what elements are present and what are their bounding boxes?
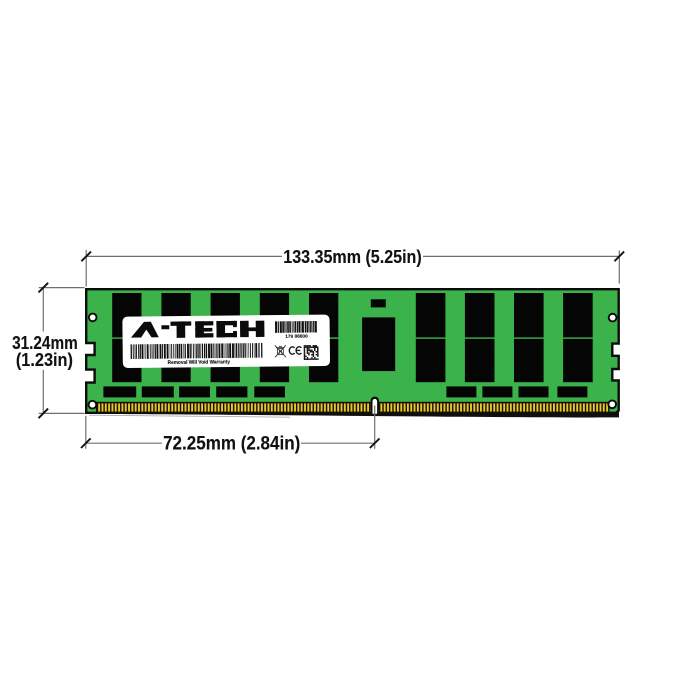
svg-text:(1.23in): (1.23in) bbox=[16, 349, 73, 370]
svg-text:179 88000: 179 88000 bbox=[285, 334, 308, 339]
svg-text:Removal Will Void Warranty: Removal Will Void Warranty bbox=[168, 359, 230, 366]
svg-text:72.25mm (2.84in): 72.25mm (2.84in) bbox=[163, 434, 300, 455]
svg-text:133.35mm (5.25in): 133.35mm (5.25in) bbox=[283, 246, 421, 267]
